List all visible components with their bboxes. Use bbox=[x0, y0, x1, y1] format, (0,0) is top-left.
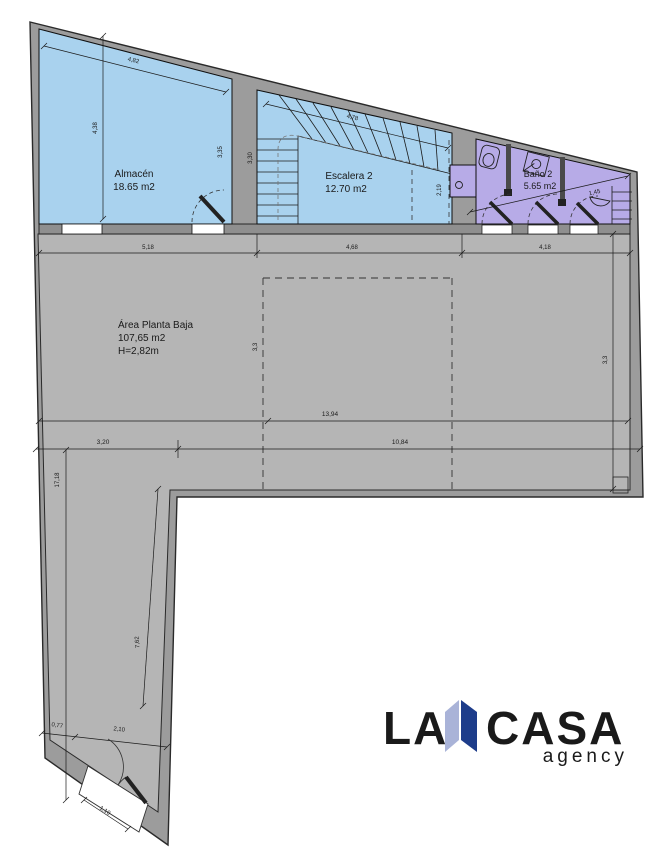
dim-col-diag: 7,62 bbox=[135, 635, 142, 648]
dim-mid-right-v: 3,3 bbox=[603, 355, 609, 364]
bano-area: 5.65 m2 bbox=[524, 181, 557, 191]
dim-row-top-b: 4,68 bbox=[346, 245, 358, 251]
floor-plan-drawing: Almacén 18.65 m2 Escalera 2 12.70 m2 Bañ… bbox=[0, 0, 670, 856]
escalera-label: Escalera 2 bbox=[325, 171, 373, 182]
dim-door-run: 2,10 bbox=[113, 726, 126, 733]
planta-label: Área Planta Baja bbox=[118, 318, 193, 331]
dim-escalera-right: 2,19 bbox=[437, 184, 443, 196]
bano-label: Baño 2 bbox=[524, 169, 553, 179]
dim-mid-long: 13,94 bbox=[322, 411, 339, 418]
dim-bottom-left: 3,20 bbox=[97, 439, 110, 446]
dim-mid-left-v: 3,3 bbox=[253, 342, 259, 351]
logo-la: LA bbox=[383, 702, 448, 754]
planta-area: 107,65 m2 bbox=[118, 333, 166, 344]
bano-alcove bbox=[450, 165, 476, 197]
dim-row-top-a: 5,18 bbox=[142, 245, 154, 251]
dim-almacen-right: 3,35 bbox=[218, 146, 224, 158]
dim-almacen-left: 4,38 bbox=[93, 122, 99, 134]
escalera-area: 12.70 m2 bbox=[325, 184, 367, 195]
dim-bottom-right: 10,84 bbox=[392, 439, 409, 446]
almacen-door-threshold2 bbox=[192, 224, 224, 234]
dim-row-top-c: 4,18 bbox=[539, 245, 551, 251]
logo-agency: agency bbox=[543, 746, 628, 767]
almacen-label: Almacén bbox=[115, 169, 154, 180]
almacen-door-threshold bbox=[62, 224, 102, 234]
planta-height: H=2,82m bbox=[118, 346, 159, 357]
dim-escalera-left: 3,30 bbox=[248, 152, 254, 164]
dim-col-height: 17,18 bbox=[55, 472, 61, 488]
almacen-area: 18.65 m2 bbox=[113, 182, 155, 193]
floor-plan-page: Almacén 18.65 m2 Escalera 2 12.70 m2 Bañ… bbox=[0, 0, 670, 856]
